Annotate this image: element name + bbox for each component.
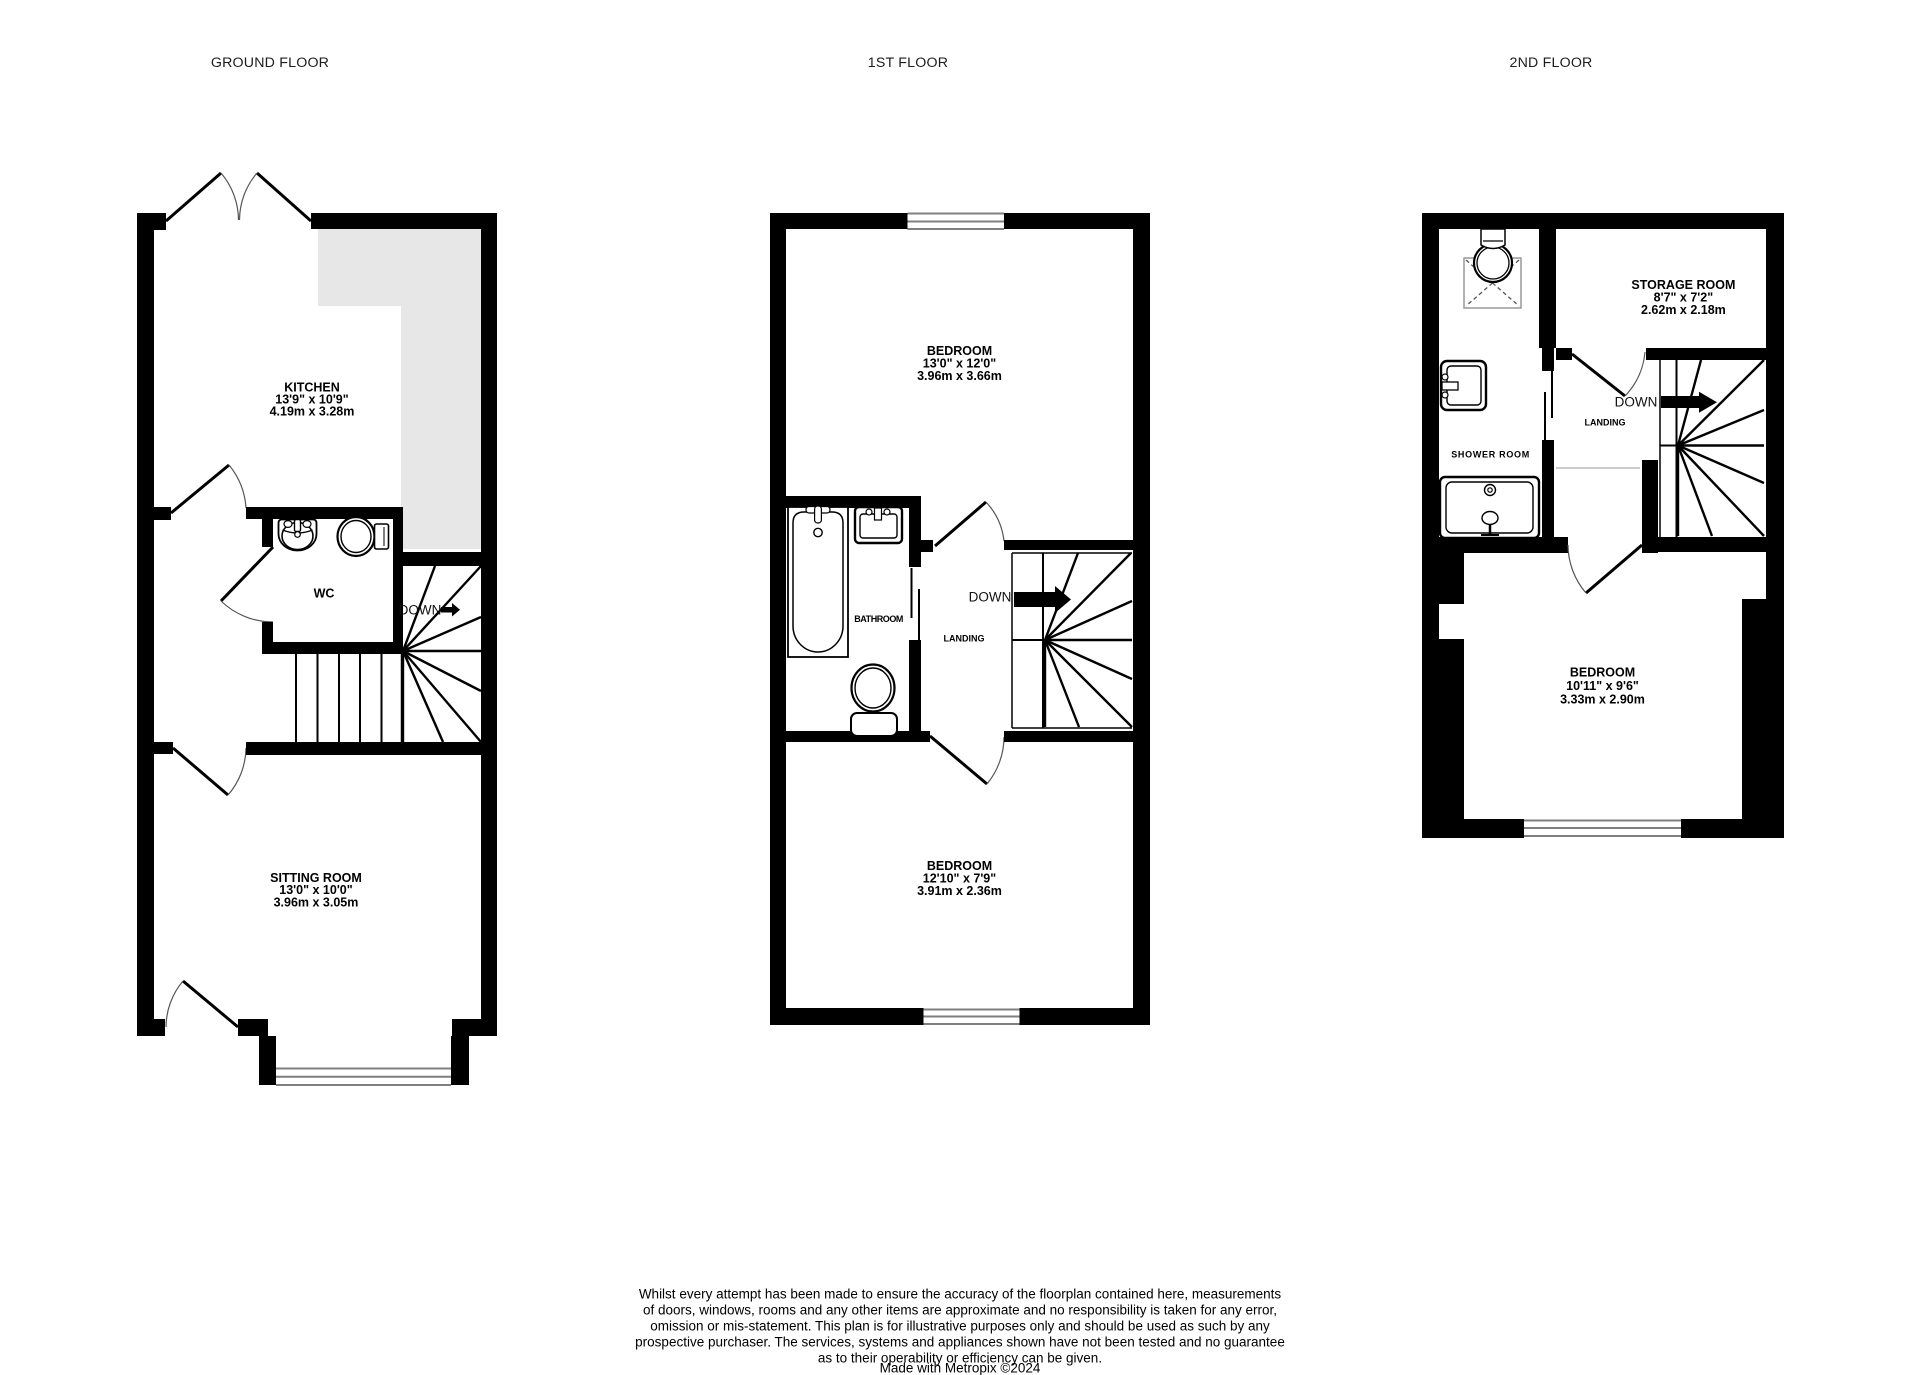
svg-text:SHOWER ROOM: SHOWER ROOM — [1451, 450, 1530, 460]
svg-text:3.33m x 2.90m: 3.33m x 2.90m — [1560, 693, 1645, 707]
svg-text:WC: WC — [314, 587, 335, 601]
svg-text:DOWN: DOWN — [969, 590, 1012, 605]
svg-text:DOWN: DOWN — [399, 603, 442, 618]
svg-text:2ND FLOOR: 2ND FLOOR — [1510, 55, 1593, 71]
svg-text:BEDROOM: BEDROOM — [1570, 666, 1635, 680]
svg-text:omission or mis-statement. Thi: omission or mis-statement. This plan is … — [650, 1319, 1270, 1334]
svg-text:1ST FLOOR: 1ST FLOOR — [868, 55, 948, 71]
svg-text:2.62m x 2.18m: 2.62m x 2.18m — [1641, 303, 1726, 317]
svg-text:3.91m x 2.36m: 3.91m x 2.36m — [917, 884, 1002, 898]
svg-text:GROUND FLOOR: GROUND FLOOR — [211, 55, 329, 71]
svg-text:4.19m x 3.28m: 4.19m x 3.28m — [270, 405, 355, 419]
svg-text:of doors, windows, rooms and a: of doors, windows, rooms and any other i… — [643, 1302, 1277, 1317]
svg-text:LANDING: LANDING — [1585, 418, 1626, 428]
svg-text:Whilst every attempt has been: Whilst every attempt has been made to en… — [639, 1286, 1282, 1301]
svg-text:Made with Metropix ©2024: Made with Metropix ©2024 — [880, 1361, 1041, 1375]
svg-text:BATHROOM: BATHROOM — [854, 614, 903, 624]
svg-text:DOWN: DOWN — [1615, 395, 1658, 410]
svg-text:LANDING: LANDING — [944, 634, 985, 644]
svg-text:10'11" x 9'6": 10'11" x 9'6" — [1566, 679, 1639, 693]
svg-text:3.96m x 3.05m: 3.96m x 3.05m — [274, 895, 359, 909]
svg-text:prospective purchaser. The ser: prospective purchaser. The services, sys… — [635, 1335, 1285, 1350]
svg-text:3.96m x 3.66m: 3.96m x 3.66m — [917, 369, 1002, 383]
